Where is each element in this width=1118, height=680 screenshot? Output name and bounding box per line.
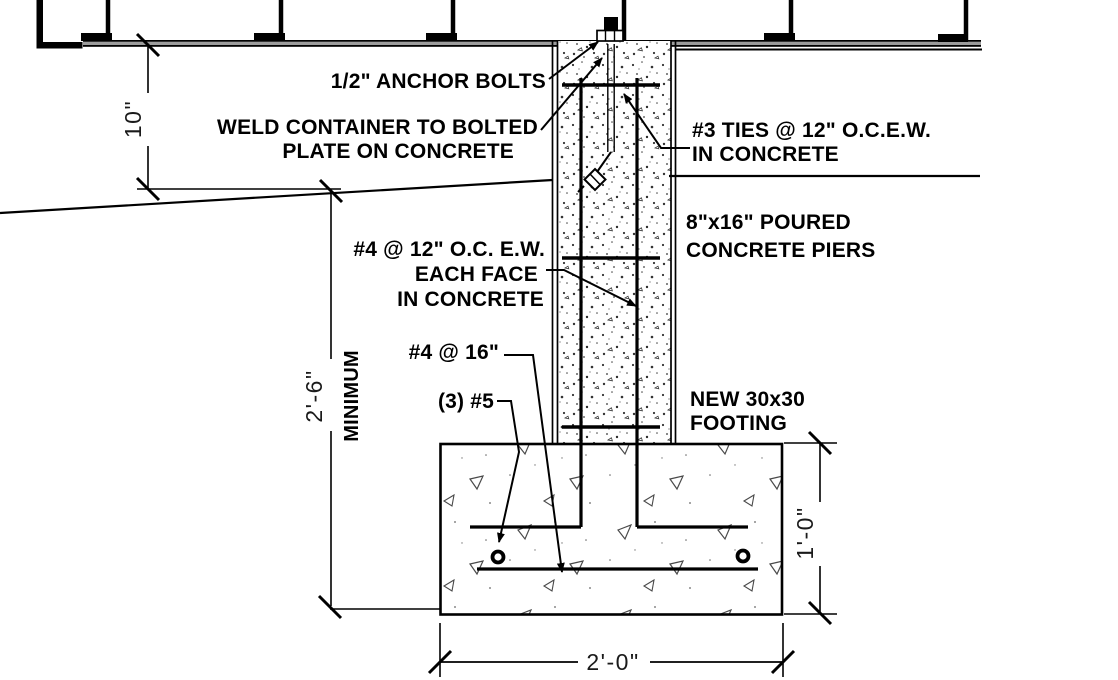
callout-pier-note-line2: CONCRETE PIERS [686,239,876,262]
dim-text-embed-depth: 2'-6" [301,369,327,422]
callout-ties-note-line1: #3 TIES @ 12" O.C.E.W. [692,119,931,142]
container-corner-post [37,0,44,44]
dimension-1ft0: 1'-0" [784,432,837,624]
dim-tick [319,596,341,618]
container-floor [37,0,983,50]
callout-anchor-bolts: 1/2" ANCHOR BOLTS [331,70,546,93]
bolt-nut [597,31,623,42]
dim-text-pier-height: 10" [120,100,146,138]
new-footing [441,444,783,615]
grade-line-left [0,180,553,213]
callout-reinf-note-line3: IN CONCRETE [397,288,544,311]
callout-reinf-note-line1: #4 @ 12" O.C. E.W. [353,238,545,261]
floor-band [83,42,981,45]
dim-text-minimum: MINIMUM [341,350,363,441]
container-corner-bottom-rail [37,42,83,49]
floor-line-top [83,40,981,42]
drawing-canvas: 10" 2'-6" MINIMUM 1'-0" 2'-0" [0,0,1118,680]
drawing-sheet: 10" 2'-6" MINIMUM 1'-0" 2'-0" [0,0,1118,680]
callout-footing-note-line2: FOOTING [690,412,787,435]
callout-reinf-note-line2: EACH FACE [415,263,538,286]
floor-line-bottom [83,45,981,47]
callout-pier-note-line1: 8"x16" POURED [686,211,851,234]
footing-long-bar-section-right [738,551,749,562]
callout-footing-note-line1: NEW 30x30 [690,388,805,411]
bolt-head [604,17,618,31]
dim-text-footing-width: 2'-0" [586,649,639,675]
footing-concrete-fill [441,445,782,614]
floor-cross-members [108,0,966,40]
callout-weld-note-line1: WELD CONTAINER TO BOLTED [217,116,538,139]
dimension-2ft0: 2'-0" [429,623,794,677]
footing-long-bar-section-left [493,552,504,563]
dim-text-footing-depth: 1'-0" [792,506,818,559]
callout-transverse-bar-note: #4 @ 16" [409,341,499,364]
callout-weld-note-line2: PLATE ON CONCRETE [282,140,514,163]
callout-ties-note-line2: IN CONCRETE [692,143,839,166]
callout-long-bars-note: (3) #5 [438,390,494,413]
